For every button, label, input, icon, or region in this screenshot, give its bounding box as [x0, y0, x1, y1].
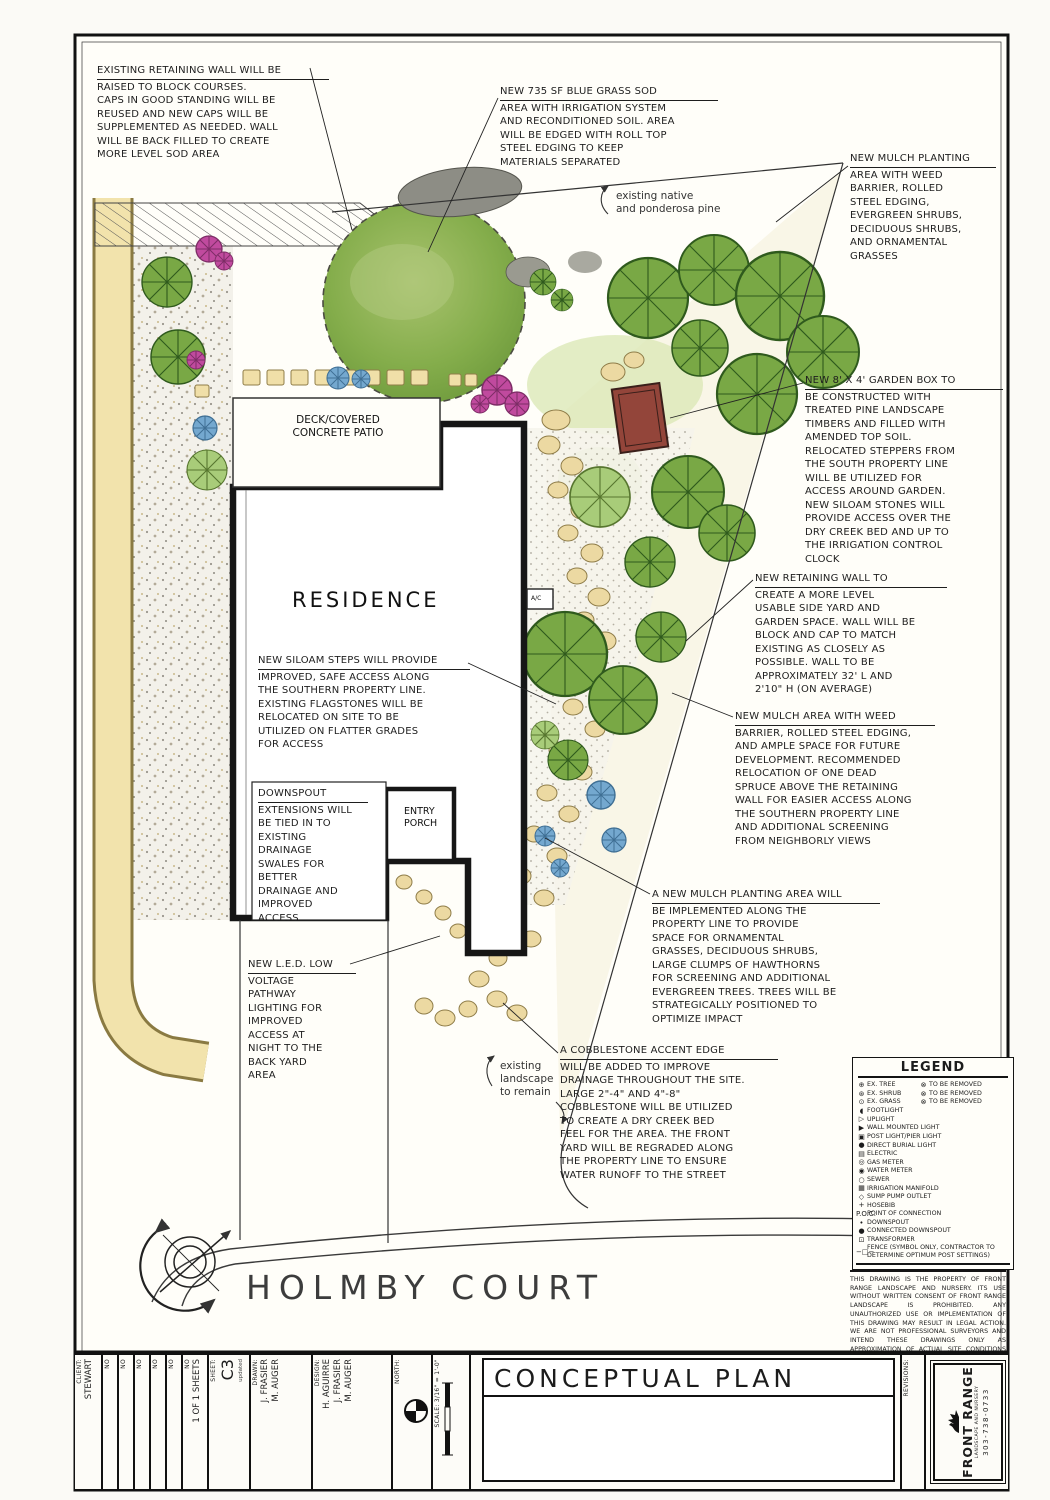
annotation-mulch-area: NEW MULCH AREA WITH WEED BARRIER, ROLLED… — [735, 710, 935, 848]
plan-title: CONCEPTUAL PLAN — [484, 1360, 893, 1397]
legend-symbol: ▣ — [856, 1133, 867, 1142]
annotation-siloam-steps: NEW SILOAM STEPS WILL PROVIDE IMPROVED, … — [258, 654, 470, 752]
annotation-title: A COBBLESTONE ACCENT EDGE — [560, 1044, 778, 1060]
legend-item-label: IRRIGATION MANIFOLD — [867, 1185, 1010, 1193]
ac-label: A/C — [531, 595, 541, 602]
north-cell: NORTH: — [393, 1355, 433, 1489]
design-name: H. AGUIRRE — [322, 1359, 332, 1409]
annotation-garden-box: NEW 8' X 4' GARDEN BOX TO BE CONSTRUCTED… — [805, 374, 1003, 566]
legend-symbol: ⊙ — [856, 1098, 867, 1107]
legend-item-row: ● CONNECTED DOWNSPOUT — [856, 1227, 1010, 1236]
legend-symbol: ◉ — [856, 1167, 867, 1176]
legend-item-label: GAS METER — [867, 1159, 1010, 1167]
legend-symbol: ⊕ — [856, 1081, 867, 1090]
legend-symbol: ● — [856, 1227, 867, 1236]
annotation-sod-area: NEW 735 SF BLUE GRASS SOD AREA WITH IRRI… — [500, 85, 718, 169]
scale-bar — [442, 1379, 454, 1463]
sheet-number: C3 — [218, 1359, 237, 1380]
legend-title: LEGEND — [858, 1060, 1008, 1078]
legend-item-label: ELECTRIC — [867, 1150, 1010, 1158]
annotation-body: EXTENSIONS WILL BE TIED IN TO EXISTING D… — [258, 804, 368, 926]
garden-box — [612, 383, 668, 453]
legend-item-row: ▦ IRRIGATION MANIFOLD — [856, 1184, 1010, 1193]
drawn-by-cell: DRAWN: J. FRASIER M. AUGER — [251, 1355, 313, 1489]
note-existing-landscape: existing landscape to remain — [500, 1060, 553, 1099]
sheet-note: updated — [238, 1359, 244, 1382]
legend-item-row: −□− FENCE (SYMBOL ONLY, CONTRACTOR TO DE… — [856, 1244, 1010, 1260]
design-name: J. FRASIER — [333, 1359, 343, 1402]
legend-item-row: ○ SEWER — [856, 1176, 1010, 1185]
drawn-name: J. FRASIER — [260, 1359, 270, 1402]
legend-item-label: SEWER — [867, 1176, 1010, 1184]
annotation-body: VOLTAGE PATHWAY LIGHTING FOR IMPROVED AC… — [248, 975, 356, 1083]
patio-outline — [233, 398, 440, 487]
annotation-body: CREATE A MORE LEVEL USABLE SIDE YARD AND… — [755, 589, 947, 697]
legend-items: ◖ FOOTLIGHT ▷ UPLIGHT ▶ WALL MOUNTED LIG… — [856, 1107, 1010, 1260]
legend-symbol: + — [856, 1201, 867, 1210]
annotation-downspout: DOWNSPOUT EXTENSIONS WILL BE TIED IN TO … — [258, 787, 368, 925]
annotation-body: BARRIER, ROLLED STEEL EDGING, AND AMPLE … — [735, 727, 935, 849]
annotation-body: AREA WITH WEED BARRIER, ROLLED STEEL EDG… — [850, 169, 996, 264]
design-name: M. AUGER — [344, 1359, 354, 1402]
legend-item-row: ◉ WATER METER — [856, 1167, 1010, 1176]
entry-porch-label: ENTRY PORCH — [404, 806, 437, 830]
annotation-title: A NEW MULCH PLANTING AREA WILL — [652, 888, 880, 904]
legend-item-row: ▤ ELECTRIC — [856, 1150, 1010, 1159]
legend-item-row: ▶ WALL MOUNTED LIGHT — [856, 1124, 1010, 1133]
legend-item-label: FENCE (SYMBOL ONLY, CONTRACTOR TO DETERM… — [867, 1244, 1010, 1260]
annotation-body: IMPROVED, SAFE ACCESS ALONG THE SOUTHERN… — [258, 671, 470, 752]
annotation-led-lighting: NEW L.E.D. LOW VOLTAGE PATHWAY LIGHTING … — [248, 958, 356, 1083]
drawn-name: M. AUGER — [271, 1359, 281, 1402]
legend-pairs: ⊕EX. TREE ⊗TO BE REMOVED ⊛EX. SHRUB ⊗TO … — [856, 1081, 1010, 1107]
no-cell: NO — [119, 1355, 135, 1489]
annotation-body: BE CONSTRUCTED WITH TREATED PINE LANDSCA… — [805, 391, 1003, 567]
annotation-title: NEW RETAINING WALL TO — [755, 572, 947, 588]
deck-patio-label: DECK/COVERED CONCRETE PATIO — [258, 414, 418, 440]
disclaimer-text: THIS DRAWING IS THE PROPERTY OF FRONT RA… — [850, 1270, 1006, 1363]
annotation-title: NEW MULCH AREA WITH WEED — [735, 710, 935, 726]
legend-item-row: ▷ UPLIGHT — [856, 1115, 1010, 1124]
legend-symbol: ▷ — [856, 1115, 867, 1124]
legend-item-label: POINT OF CONNECTION — [867, 1210, 1010, 1218]
logo-subtitle: LANDSCAPE AND NURSERY — [975, 1386, 980, 1459]
legend-symbol: P.O.C. — [856, 1210, 867, 1219]
annotation-title: EXISTING RETAINING WALL WILL BE — [97, 64, 329, 80]
sheet-number-cell: SHEET: C3 updated — [209, 1355, 251, 1489]
legend-symbol: ◎ — [856, 1158, 867, 1167]
legend-item-row: + HOSEBIB — [856, 1201, 1010, 1210]
annotation-title: NEW SILOAM STEPS WILL PROVIDE — [258, 654, 470, 670]
title-block-client-cell: CLIENT: STEWART — [75, 1355, 103, 1489]
annotation-body: WILL BE ADDED TO IMPROVE DRAINAGE THROUG… — [560, 1061, 778, 1183]
legend-item-label: FOOTLIGHT — [867, 1107, 1010, 1115]
legend-pair-row: ⊛EX. SHRUB ⊗TO BE REMOVED — [856, 1090, 1010, 1099]
legend-symbol: ⊡ — [856, 1236, 867, 1245]
drawn-label: DRAWN: — [252, 1359, 259, 1386]
legend-symbol: ⊗ — [918, 1090, 929, 1099]
legend-symbol: ▦ — [856, 1184, 867, 1193]
no-cell: NO — [135, 1355, 151, 1489]
legend-item-row: ● DIRECT BURIAL LIGHT — [856, 1141, 1010, 1150]
legend-item-label: TRANSFORMER — [867, 1236, 1010, 1244]
legend-symbol: −□− — [856, 1248, 867, 1257]
legend-item-label: UPLIGHT — [867, 1116, 1010, 1124]
legend-symbol: ● — [856, 1141, 867, 1150]
legend-pair-row: ⊕EX. TREE ⊗TO BE REMOVED — [856, 1081, 1010, 1090]
scale-cell: SCALE: 3/16" = 1'-0" — [433, 1355, 471, 1489]
logo-name: FRONT RANGE — [960, 1366, 975, 1478]
street-name-label: HOLMBY COURT — [246, 1268, 605, 1307]
sheet-label: SHEET: — [210, 1359, 217, 1382]
design-by-cell: DESIGN: H. AGUIRRE J. FRASIER M. AUGER — [313, 1355, 393, 1489]
legend-item-row: ◖ FOOTLIGHT — [856, 1107, 1010, 1116]
legend: LEGEND ⊕EX. TREE ⊗TO BE REMOVED ⊛EX. SHR… — [852, 1057, 1014, 1270]
annotation-body: RAISED TO BLOCK COURSES. CAPS IN GOOD ST… — [97, 81, 329, 162]
legend-item-row: • DOWNSPOUT — [856, 1219, 1010, 1228]
company-logo: FRONT RANGE LANDSCAPE AND NURSERY 303-73… — [933, 1363, 1003, 1481]
legend-item-label: DIRECT BURIAL LIGHT — [867, 1142, 1010, 1150]
annotation-existing-retaining-wall: EXISTING RETAINING WALL WILL BE RAISED T… — [97, 64, 329, 162]
no-cell: NO — [103, 1355, 119, 1489]
sheets-count-cell: NO 1 OF 1 SHEETS — [183, 1355, 209, 1489]
legend-symbol: ▶ — [856, 1124, 867, 1133]
annotation-title: NEW MULCH PLANTING — [850, 152, 996, 168]
legend-symbol: ⊛ — [856, 1090, 867, 1099]
legend-item-row: P.O.C. POINT OF CONNECTION — [856, 1210, 1010, 1219]
plan-title-cell: CONCEPTUAL PLAN — [477, 1355, 900, 1489]
legend-item-label: POST LIGHT/PIER LIGHT — [867, 1133, 1010, 1141]
legend-item-label: WATER METER — [867, 1167, 1010, 1175]
no-cell: NO — [167, 1355, 183, 1489]
logo-cell: FRONT RANGE LANDSCAPE AND NURSERY 303-73… — [926, 1355, 1008, 1489]
annotation-title: NEW L.E.D. LOW — [248, 958, 356, 974]
annotation-title: NEW 735 SF BLUE GRASS SOD — [500, 85, 718, 101]
north-label: NORTH: — [394, 1359, 401, 1384]
legend-item-label: HOSEBIB — [867, 1202, 1010, 1210]
title-block: CLIENT: STEWART NO NO NO NO NO NO 1 OF 1… — [75, 1352, 1008, 1489]
no-cell: NO — [151, 1355, 167, 1489]
logo-phone: 303-738-0733 — [982, 1388, 990, 1456]
legend-symbol: ◇ — [856, 1193, 867, 1202]
design-label: DESIGN: — [314, 1359, 321, 1386]
legend-item-row: ▣ POST LIGHT/PIER LIGHT — [856, 1133, 1010, 1142]
annotation-body: BE IMPLEMENTED ALONG THE PROPERTY LINE T… — [652, 905, 880, 1027]
annotation-new-retaining-wall: NEW RETAINING WALL TO CREATE A MORE LEVE… — [755, 572, 947, 697]
legend-item-row: ⊡ TRANSFORMER — [856, 1236, 1010, 1245]
residence-label: RESIDENCE — [292, 588, 439, 612]
revisions-cell: REVISIONS: — [900, 1355, 926, 1489]
elk-icon — [946, 1409, 960, 1435]
conceptual-plan-sheet: EXISTING RETAINING WALL WILL BE RAISED T… — [0, 0, 1050, 1500]
scale-label: SCALE: 3/16" = 1'-0" — [434, 1359, 441, 1427]
legend-symbol: ◖ — [856, 1107, 867, 1116]
legend-symbol: • — [856, 1219, 867, 1228]
north-arrow-icon — [402, 1397, 430, 1425]
legend-item-label: WALL MOUNTED LIGHT — [867, 1124, 1010, 1132]
plan-title-box: CONCEPTUAL PLAN — [482, 1358, 895, 1482]
legend-item-label: SUMP PUMP OUTLET — [867, 1193, 1010, 1201]
annotation-mulch-planting: NEW MULCH PLANTING AREA WITH WEED BARRIE… — [850, 152, 996, 263]
annotation-title: NEW 8' X 4' GARDEN BOX TO — [805, 374, 1003, 390]
annotation-body: AREA WITH IRRIGATION SYSTEM AND RECONDIT… — [500, 102, 718, 170]
annotation-title: DOWNSPOUT — [258, 787, 368, 803]
legend-symbol: ○ — [856, 1176, 867, 1185]
annotation-cobblestone-edge: A COBBLESTONE ACCENT EDGE WILL BE ADDED … — [560, 1044, 778, 1182]
legend-item-row: ◇ SUMP PUMP OUTLET — [856, 1193, 1010, 1202]
legend-pair-row: ⊙EX. GRASS ⊗TO BE REMOVED — [856, 1098, 1010, 1107]
annotation-mulch-planting-area: A NEW MULCH PLANTING AREA WILL BE IMPLEM… — [652, 888, 880, 1026]
client-name: STEWART — [84, 1359, 94, 1399]
legend-symbol: ⊗ — [918, 1098, 929, 1107]
legend-item-label: DOWNSPOUT — [867, 1219, 1010, 1227]
legend-symbol: ⊗ — [918, 1081, 929, 1090]
revisions-label: REVISIONS: — [903, 1359, 910, 1396]
legend-item-row: ◎ GAS METER — [856, 1158, 1010, 1167]
legend-symbol: ▤ — [856, 1150, 867, 1159]
client-label: CLIENT: — [76, 1359, 83, 1384]
note-native-pine: existing native and ponderosa pine — [616, 190, 720, 216]
sheet-count: 1 OF 1 SHEETS — [192, 1359, 202, 1423]
legend-item-label: CONNECTED DOWNSPOUT — [867, 1227, 1010, 1235]
